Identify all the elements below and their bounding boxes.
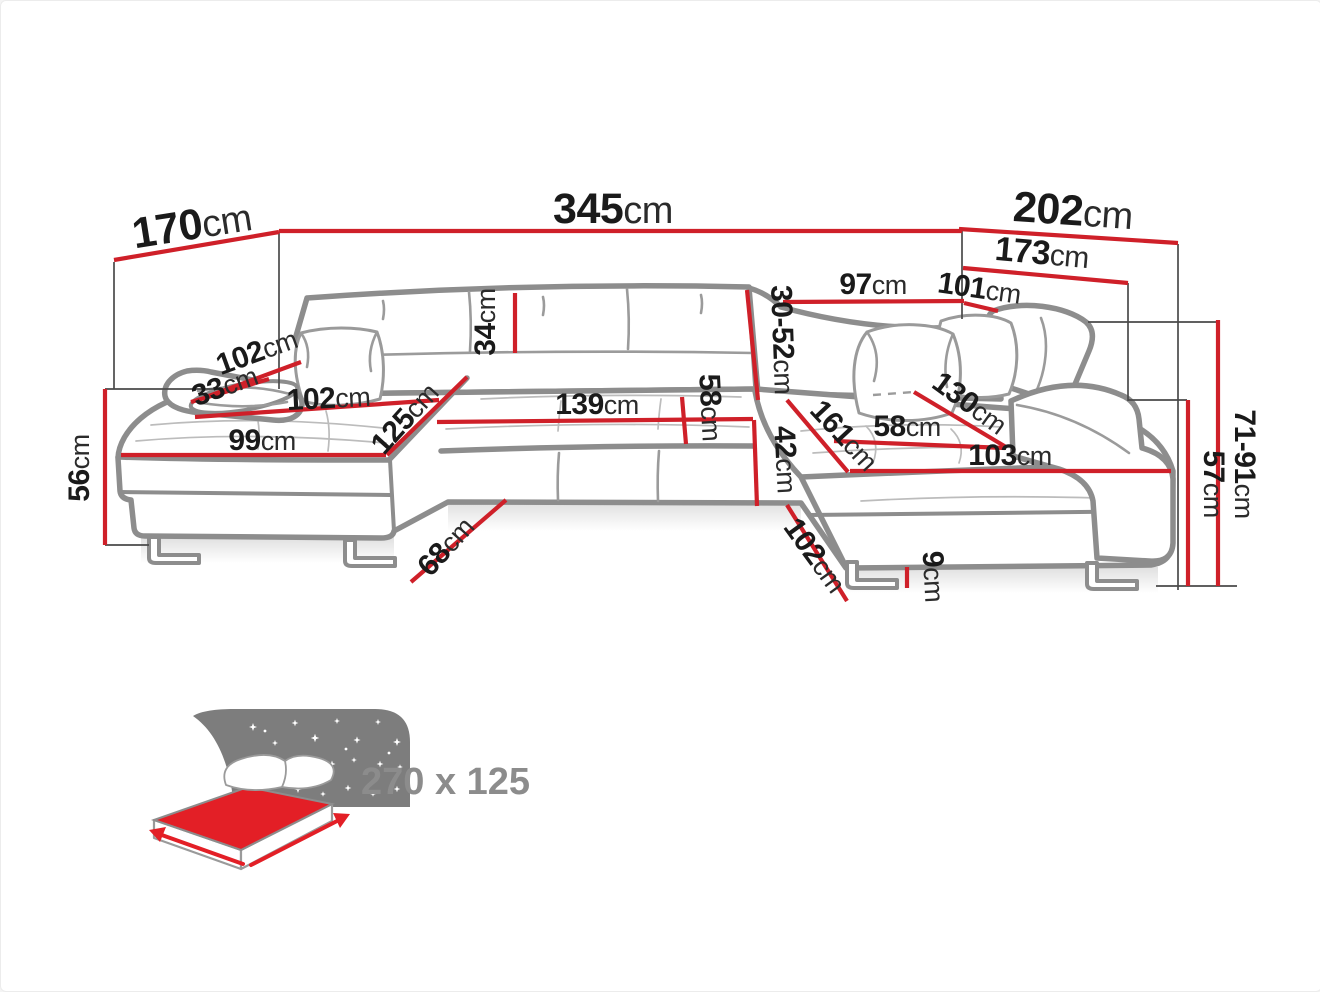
dim-bench-seat-depth-label: 58cm — [692, 373, 728, 442]
dim-right-seat-depth-label: 58cm — [873, 410, 940, 443]
dim-left-depth-label: 170cm — [129, 192, 255, 258]
dim-chaise-top-length-label: 102cm — [286, 380, 371, 417]
bed-pillows — [224, 755, 333, 790]
dim-seat-front-height-label: 42cm — [767, 425, 803, 494]
dim-right-seat-span-line — [783, 301, 964, 302]
dim-chaise-front-width-label: 99cm — [228, 424, 295, 457]
dim-foot-height-label: 9cm — [916, 550, 952, 603]
sleeping-function-icon: 270 x 125 — [149, 709, 530, 869]
dim-backrest-height-range-label: 71-91cm — [1228, 409, 1261, 518]
dim-seat-front-height-line — [754, 420, 757, 506]
dim-total-width-label: 345cm — [553, 185, 673, 233]
dim-backrest-cushion-height-label: 34cm — [469, 288, 502, 355]
dim-left-side-height-label: 56cm — [63, 434, 96, 501]
dim-right-depth-label: 202cm — [1011, 183, 1134, 239]
dim-bench-seat-width-label: 139cm — [555, 388, 639, 421]
diagram-svg: 170cm 345cm 202cm 173cm 97cm 101cm 34cm … — [1, 1, 1320, 991]
dim-right-chaise-width-label: 103cm — [968, 439, 1052, 472]
dim-right-seat-span-label: 97cm — [839, 268, 906, 301]
sofa-dimension-diagram: 170cm 345cm 202cm 173cm 97cm 101cm 34cm … — [0, 0, 1320, 992]
dim-headrest-height-range-label: 30-52cm — [764, 285, 801, 395]
dim-right-arm-height-label: 57cm — [1197, 450, 1230, 517]
sleeping-area-size: 270 x 125 — [361, 761, 530, 803]
